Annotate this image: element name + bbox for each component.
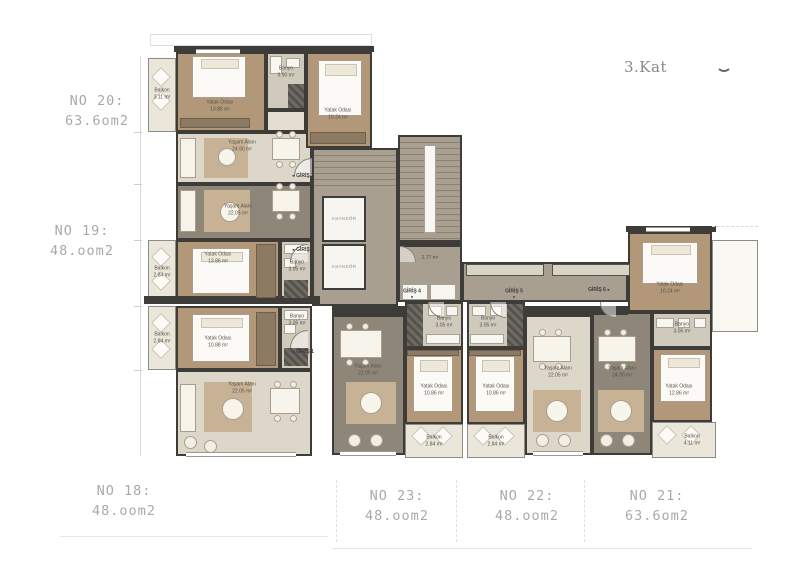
tround-shape bbox=[360, 392, 382, 414]
fixture-shape bbox=[656, 318, 674, 328]
room-label: Balkon2.84 m² bbox=[426, 435, 443, 448]
sill-shape bbox=[466, 264, 544, 276]
table-shape bbox=[270, 388, 300, 414]
sofa-shape bbox=[180, 384, 196, 432]
apartment-number: NO 21: bbox=[597, 487, 717, 507]
room-label: Yatak Odası10.24 m² bbox=[656, 282, 683, 295]
fixture-shape bbox=[424, 145, 436, 233]
chair-shape bbox=[346, 323, 353, 330]
tick-shape bbox=[134, 184, 142, 185]
chair-shape bbox=[276, 131, 283, 138]
room-label: Yatak Odası13.86 m² bbox=[204, 252, 231, 265]
room-label: ASANSÖR bbox=[332, 264, 357, 270]
bed-shape bbox=[192, 56, 246, 98]
shower-shape bbox=[407, 304, 423, 346]
rail-shape bbox=[150, 34, 372, 46]
hline-shape bbox=[60, 536, 328, 537]
window-shape bbox=[340, 451, 396, 456]
entrance-label: GİRİŞ 4▼ bbox=[403, 289, 421, 300]
chair-shape bbox=[290, 415, 297, 422]
apartment-area: 63.6om2 bbox=[597, 507, 717, 527]
room-label: ASANSÖR bbox=[332, 216, 357, 222]
room-label: Banyo3.05 m² bbox=[674, 322, 691, 335]
apartment-area: 48.oom2 bbox=[64, 502, 184, 522]
hall-no20 bbox=[266, 110, 306, 132]
room-label: Banyo3.05 m² bbox=[289, 314, 306, 327]
wallbar-shape bbox=[525, 306, 592, 315]
chair-shape bbox=[539, 329, 546, 336]
armchair-shape bbox=[536, 434, 549, 447]
room-label: Yatak Odası10.88 m² bbox=[204, 336, 231, 349]
entrance-label: GİRİŞ 5▼ bbox=[505, 289, 523, 300]
chair-shape bbox=[274, 415, 281, 422]
tick-shape bbox=[134, 306, 142, 307]
shower-shape bbox=[284, 280, 308, 298]
chair-shape bbox=[289, 183, 296, 190]
apartment-area: 63.6om2 bbox=[37, 112, 157, 132]
chair-shape bbox=[620, 329, 627, 336]
room-label: Balkon2.84 m² bbox=[488, 435, 505, 448]
room-label: Yaşam Alanı22.05 m² bbox=[228, 382, 256, 395]
tround-shape bbox=[222, 398, 244, 420]
room-label: 2,77 m² bbox=[422, 255, 439, 262]
floor-plan: Yatak Odası13.86 m²Banyo3.90 m²Yatak Oda… bbox=[0, 0, 800, 565]
table-shape bbox=[272, 138, 300, 160]
chair-shape bbox=[362, 323, 369, 330]
apartment-label-no22: NO 22: 48.oom2 bbox=[467, 487, 587, 526]
fixture-shape bbox=[426, 334, 460, 344]
room-label: Yatak Odası13.86 m² bbox=[206, 100, 233, 113]
bed-shape bbox=[642, 242, 698, 284]
fixture-shape bbox=[694, 318, 706, 328]
wardrobe-shape bbox=[256, 244, 276, 298]
table-shape bbox=[340, 330, 382, 358]
entrance-label: ◄GİRİŞ 1 bbox=[290, 349, 314, 355]
room-label: Yaşam Alanı24.90 m² bbox=[608, 366, 636, 379]
fixture-shape bbox=[472, 306, 486, 316]
chair-shape bbox=[289, 131, 296, 138]
chair-shape bbox=[276, 213, 283, 220]
apartment-number: NO 23: bbox=[337, 487, 457, 507]
apartment-label-no20: NO 20: 63.6om2 bbox=[37, 92, 157, 131]
apartment-area: 48.oom2 bbox=[22, 242, 142, 262]
chair-shape bbox=[290, 381, 297, 388]
room-label: Yaşam Alanı22.05 m² bbox=[354, 364, 382, 377]
wardrobe-shape bbox=[469, 350, 521, 356]
apartment-area: 48.oom2 bbox=[337, 507, 457, 527]
room-label: Yaşam Alanı24.90 m² bbox=[228, 140, 256, 153]
apartment-number: NO 20: bbox=[37, 92, 157, 112]
hdash-shape bbox=[712, 226, 758, 227]
apartment-label-no21: NO 21: 63.6om2 bbox=[597, 487, 717, 526]
room-label: Yatak Odası10.86 m² bbox=[420, 384, 447, 397]
terrace-no21 bbox=[712, 240, 758, 332]
room-label: Yatak Odası12.86 m² bbox=[665, 384, 692, 397]
chair-shape bbox=[276, 161, 283, 168]
tround-shape bbox=[610, 400, 632, 422]
chair-shape bbox=[555, 329, 562, 336]
floor-plan-sheet: Yatak Odası13.86 m²Banyo3.90 m²Yatak Oda… bbox=[0, 0, 800, 565]
floor-label: 3.Kat bbox=[624, 58, 667, 76]
fixture-shape bbox=[470, 334, 504, 344]
tick-shape bbox=[134, 370, 142, 371]
tround-shape bbox=[546, 400, 568, 422]
apartment-label-no23: NO 23: 48.oom2 bbox=[337, 487, 457, 526]
apartment-number: NO 22: bbox=[467, 487, 587, 507]
sill-shape bbox=[552, 264, 630, 276]
apartment-label-no18: NO 18: 48.oom2 bbox=[64, 482, 184, 521]
armchair-shape bbox=[184, 436, 197, 449]
room-label: Yaşam Alanı22.05 m² bbox=[544, 366, 572, 379]
armchair-shape bbox=[348, 434, 361, 447]
chair-shape bbox=[346, 359, 353, 366]
wardrobe-shape bbox=[180, 118, 250, 128]
apartment-number: NO 18: bbox=[64, 482, 184, 502]
room-label: Banyo3.05 m² bbox=[480, 316, 497, 329]
apartment-area: 48.oom2 bbox=[467, 507, 587, 527]
sofa-shape bbox=[180, 190, 196, 232]
apartment-label-no19: NO 19: 48.oom2 bbox=[22, 222, 142, 261]
wardrobe-shape bbox=[310, 132, 366, 144]
room-label: Banyo3.05 m² bbox=[436, 316, 453, 329]
tick-shape bbox=[134, 132, 142, 133]
armchair-shape bbox=[600, 434, 613, 447]
apartment-number: NO 19: bbox=[22, 222, 142, 242]
armchair-shape bbox=[370, 434, 383, 447]
wallbar-shape bbox=[332, 306, 405, 315]
room-label: Yatak Odası10.86 m² bbox=[482, 384, 509, 397]
north-mark-icon bbox=[716, 56, 732, 72]
room-label: Yaşam Alanı22.05 m² bbox=[224, 204, 252, 217]
window-shape bbox=[186, 452, 296, 457]
window-shape bbox=[646, 227, 690, 232]
room-label: Balkon2.84 m² bbox=[154, 266, 171, 279]
room-label: Banyo3.90 m² bbox=[278, 66, 295, 79]
chair-shape bbox=[289, 213, 296, 220]
window-shape bbox=[196, 49, 240, 54]
treads-shape bbox=[314, 150, 396, 190]
fixture-shape bbox=[446, 306, 458, 316]
entrance-label: ◄GİRİŞ 2 bbox=[290, 247, 314, 253]
hline-shape bbox=[332, 548, 752, 549]
table-shape bbox=[272, 190, 300, 212]
room-label: Balkon2.84 m² bbox=[154, 332, 171, 345]
shower-shape bbox=[507, 304, 523, 346]
wardrobe-shape bbox=[407, 350, 459, 356]
armchair-shape bbox=[558, 434, 571, 447]
chair-shape bbox=[604, 329, 611, 336]
table-shape bbox=[598, 336, 636, 362]
armchair-shape bbox=[622, 434, 635, 447]
chair-shape bbox=[276, 183, 283, 190]
shower-shape bbox=[288, 84, 304, 108]
fixture-shape bbox=[430, 284, 456, 300]
entrance-label: ◄GİRİŞ 3 bbox=[290, 173, 314, 179]
table-shape bbox=[533, 336, 571, 362]
chair-shape bbox=[274, 381, 281, 388]
wardrobe-shape bbox=[256, 312, 276, 366]
room-label: Balkon4.11 m² bbox=[684, 434, 701, 447]
entrance-label: GİRİŞ 6► bbox=[588, 287, 612, 293]
room-label: Yatak Odası10.24 m² bbox=[324, 108, 351, 121]
sofa-shape bbox=[180, 138, 196, 178]
room-label: Banyo3.05 m² bbox=[289, 260, 306, 273]
window-shape bbox=[533, 451, 583, 456]
